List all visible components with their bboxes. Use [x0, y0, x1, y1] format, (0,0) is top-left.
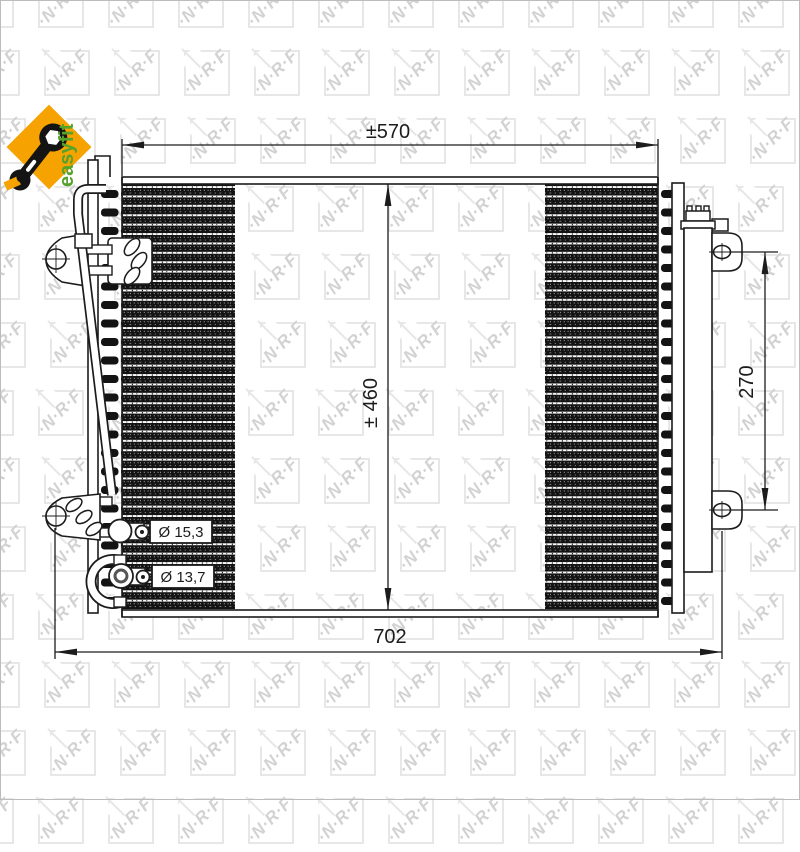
easyfit-label: easyfit [56, 123, 78, 187]
port-lower [109, 564, 150, 588]
arrow-left-icon [55, 649, 77, 656]
port-label-1: Ø 15,3 [150, 520, 212, 543]
right-tank [672, 183, 684, 613]
dimension-overall-width-label: 702 [373, 626, 406, 648]
dimension-core-height-label: ± 460 [360, 378, 382, 428]
right-tank-body [672, 183, 684, 613]
arrow-left-icon [122, 142, 144, 149]
port-upper [109, 520, 149, 543]
arrow-right-icon [636, 142, 658, 149]
condenser: Ø 15,3 Ø 13,7 [42, 156, 742, 617]
drier-cap [686, 211, 710, 221]
dimension-drier-height-label: 270 [736, 365, 758, 398]
port-large-opening [109, 520, 132, 543]
port-diameter-label: Ø 15,3 [158, 524, 203, 541]
condenser-technical-drawing: Ø 15,3 Ø 13,7 ±570 ± 460 270 702 [0, 0, 800, 800]
core-header-bottom [122, 610, 658, 617]
port-diameter-label: Ø 13,7 [160, 569, 205, 586]
core-header-top [122, 177, 658, 184]
pipe-clamp [75, 234, 92, 248]
arrow-down-icon [762, 488, 769, 510]
arrow-down-icon [385, 588, 392, 610]
dimension-drier-height: 270 [731, 252, 778, 510]
drier-body [684, 228, 712, 572]
arrow-up-icon [385, 184, 392, 206]
arrow-right-icon [700, 649, 722, 656]
dimension-core-height: ± 460 [360, 184, 391, 610]
dimension-core-width-label: ±570 [366, 121, 410, 143]
core-fins-right [545, 184, 658, 610]
easyfit-badge: easyfit [0, 105, 91, 202]
dimension-core-width: ±570 [122, 121, 658, 176]
core [122, 177, 658, 617]
port-label-2: Ø 13,7 [152, 565, 214, 588]
arrow-up-icon [762, 252, 769, 274]
